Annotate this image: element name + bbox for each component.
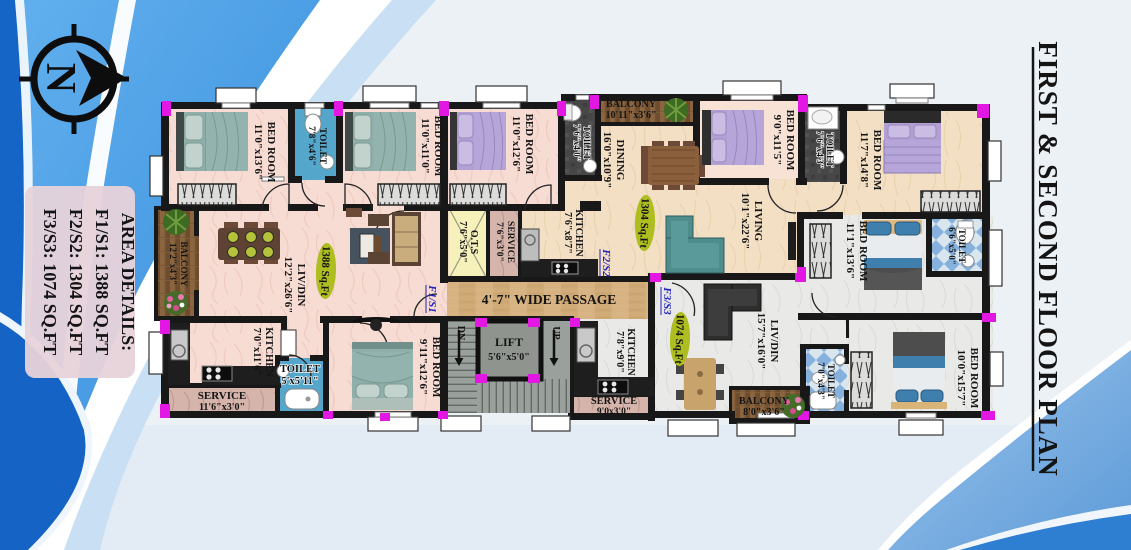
svg-text:FIRST & SECOND FLOOR PLAN: FIRST & SECOND FLOOR PLAN — [1033, 41, 1063, 477]
svg-text:BED ROOM: BED ROOM — [784, 110, 796, 171]
svg-text:7'0"x11'6": 7'0"x11'6" — [251, 328, 262, 376]
svg-text:10'0"x15'7": 10'0"x15'7" — [955, 350, 967, 407]
svg-text:F1/S1: 1388 SQ.FT: F1/S1: 1388 SQ.FT — [92, 209, 112, 356]
svg-text:BALCONY: BALCONY — [606, 99, 657, 110]
svg-text:1304 Sq.Ft: 1304 Sq.Ft — [637, 198, 651, 249]
svg-text:11'0"x13'6": 11'0"x13'6" — [252, 124, 264, 180]
svg-text:4'-7" WIDE PASSAGE: 4'-7" WIDE PASSAGE — [482, 292, 617, 307]
svg-text:BED ROOM: BED ROOM — [968, 348, 980, 409]
svg-text:8'0"x3'6": 8'0"x3'6" — [743, 407, 785, 418]
svg-text:BED ROOM: BED ROOM — [265, 122, 277, 183]
svg-text:11'0"x12'6": 11'0"x12'6" — [510, 116, 522, 172]
svg-text:BED ROOM: BED ROOM — [430, 337, 442, 398]
svg-text:10'11"x3'6": 10'11"x3'6" — [605, 110, 656, 121]
svg-text:12'2"x26'6": 12'2"x26'6" — [282, 257, 294, 314]
svg-text:AREA DETAILS:: AREA DETAILS: — [118, 213, 138, 351]
svg-text:BED ROOM: BED ROOM — [432, 116, 444, 177]
svg-text:10'1"x22'6": 10'1"x22'6" — [739, 193, 751, 250]
svg-text:11'1"x13'6": 11'1"x13'6" — [844, 223, 856, 279]
svg-text:BED ROOM: BED ROOM — [857, 221, 869, 282]
svg-text:UP: UP — [550, 326, 561, 339]
svg-text:LIVING: LIVING — [752, 201, 764, 242]
svg-text:N: N — [37, 63, 83, 93]
svg-text:12'2"x4'3": 12'2"x4'3" — [168, 243, 178, 285]
svg-text:KITCHEN: KITCHEN — [263, 327, 274, 377]
svg-text:7'6"x3'0": 7'6"x3'0" — [494, 222, 504, 262]
svg-text:7'6"x4'0": 7'6"x4'0" — [572, 124, 582, 162]
svg-text:TOILET: TOILET — [280, 364, 320, 375]
svg-text:F3/S3: 1074 SQ.FT: F3/S3: 1074 SQ.FT — [40, 209, 60, 356]
svg-text:BED ROOM: BED ROOM — [871, 130, 883, 191]
svg-text:KITCHEN: KITCHEN — [625, 328, 636, 376]
svg-text:7'8"x4'6": 7'8"x4'6" — [306, 126, 316, 166]
svg-text:TOILET: TOILET — [825, 133, 835, 167]
svg-text:TOILET: TOILET — [826, 364, 836, 398]
svg-text:7'0"x4'3": 7'0"x4'3" — [816, 362, 826, 400]
svg-text:7'6"x8'7": 7'6"x8'7" — [562, 212, 573, 254]
svg-text:TOILET: TOILET — [957, 229, 967, 263]
svg-text:7'8"x9'0": 7'8"x9'0" — [614, 331, 625, 373]
svg-text:BED ROOM: BED ROOM — [523, 114, 535, 175]
svg-text:KITCHEN: KITCHEN — [573, 209, 584, 257]
svg-text:DN: DN — [455, 326, 466, 341]
svg-text:SERVICE: SERVICE — [505, 221, 515, 263]
svg-text:11'7"x14'8": 11'7"x14'8" — [858, 132, 870, 188]
svg-text:1388 Sq.Ft: 1388 Sq.Ft — [318, 246, 332, 297]
svg-text:16'0"x10'9": 16'0"x10'9" — [601, 132, 613, 189]
svg-text:9'0"x11'5": 9'0"x11'5" — [771, 115, 783, 166]
svg-text:9'11"x12'6": 9'11"x12'6" — [417, 339, 429, 395]
svg-text:5'x5'11": 5'x5'11" — [281, 376, 318, 387]
svg-text:SERVICE: SERVICE — [198, 390, 247, 402]
svg-text:TOILET: TOILET — [317, 128, 327, 165]
svg-text:7'6"x4'3": 7'6"x4'3" — [815, 131, 825, 169]
svg-text:7'6"x5'0": 7'6"x5'0" — [457, 221, 468, 263]
svg-text:9'0x3'0": 9'0x3'0" — [597, 407, 631, 417]
svg-text:1074 Sq.Ft: 1074 Sq.Ft — [672, 314, 686, 365]
svg-text:LIV/DIN: LIV/DIN — [295, 264, 307, 307]
svg-text:BALCONY: BALCONY — [179, 241, 189, 287]
svg-text:11'0"x11'0": 11'0"x11'0" — [419, 118, 431, 174]
svg-text:5'6"x5'0": 5'6"x5'0" — [488, 352, 530, 363]
svg-text:6'6"x5'0": 6'6"x5'0" — [947, 227, 957, 265]
svg-text:O.T.S: O.T.S — [468, 230, 479, 255]
svg-text:SERVICE: SERVICE — [591, 396, 637, 407]
svg-text:F2/S2: 1304 SQ.FT: F2/S2: 1304 SQ.FT — [66, 209, 86, 356]
svg-text:DINING: DINING — [614, 140, 626, 181]
svg-text:TOILET: TOILET — [582, 126, 592, 160]
svg-text:LIFT: LIFT — [495, 335, 523, 349]
svg-text:F1/S1: F1/S1 — [426, 284, 438, 313]
svg-text:LIV/DIN: LIV/DIN — [768, 320, 780, 363]
svg-text:BALCONY: BALCONY — [739, 396, 790, 407]
svg-text:11'6"x3'0": 11'6"x3'0" — [199, 402, 245, 413]
svg-text:F3/S3: F3/S3 — [661, 286, 673, 315]
svg-text:F2/S2: F2/S2 — [600, 248, 612, 277]
svg-text:15'7"x16'0": 15'7"x16'0" — [755, 313, 767, 370]
